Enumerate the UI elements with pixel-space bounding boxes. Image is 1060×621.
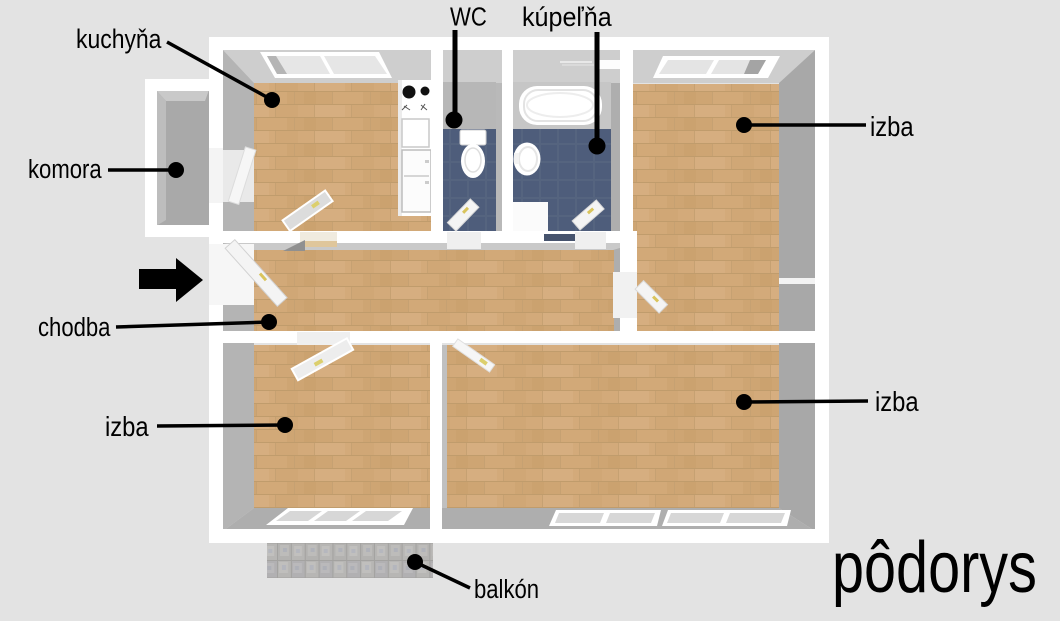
svg-text:izba: izba xyxy=(870,110,914,142)
svg-text:kuchyňa: kuchyňa xyxy=(76,24,162,54)
svg-text:balkón: balkón xyxy=(474,575,539,604)
svg-text:WC: WC xyxy=(450,3,487,32)
svg-text:chodba: chodba xyxy=(38,313,111,342)
svg-text:izba: izba xyxy=(105,410,149,442)
svg-text:pôdorys: pôdorys xyxy=(832,527,1037,608)
svg-text:komora: komora xyxy=(28,155,102,184)
svg-text:kúpeľňa: kúpeľňa xyxy=(522,1,612,32)
svg-text:izba: izba xyxy=(875,385,919,417)
